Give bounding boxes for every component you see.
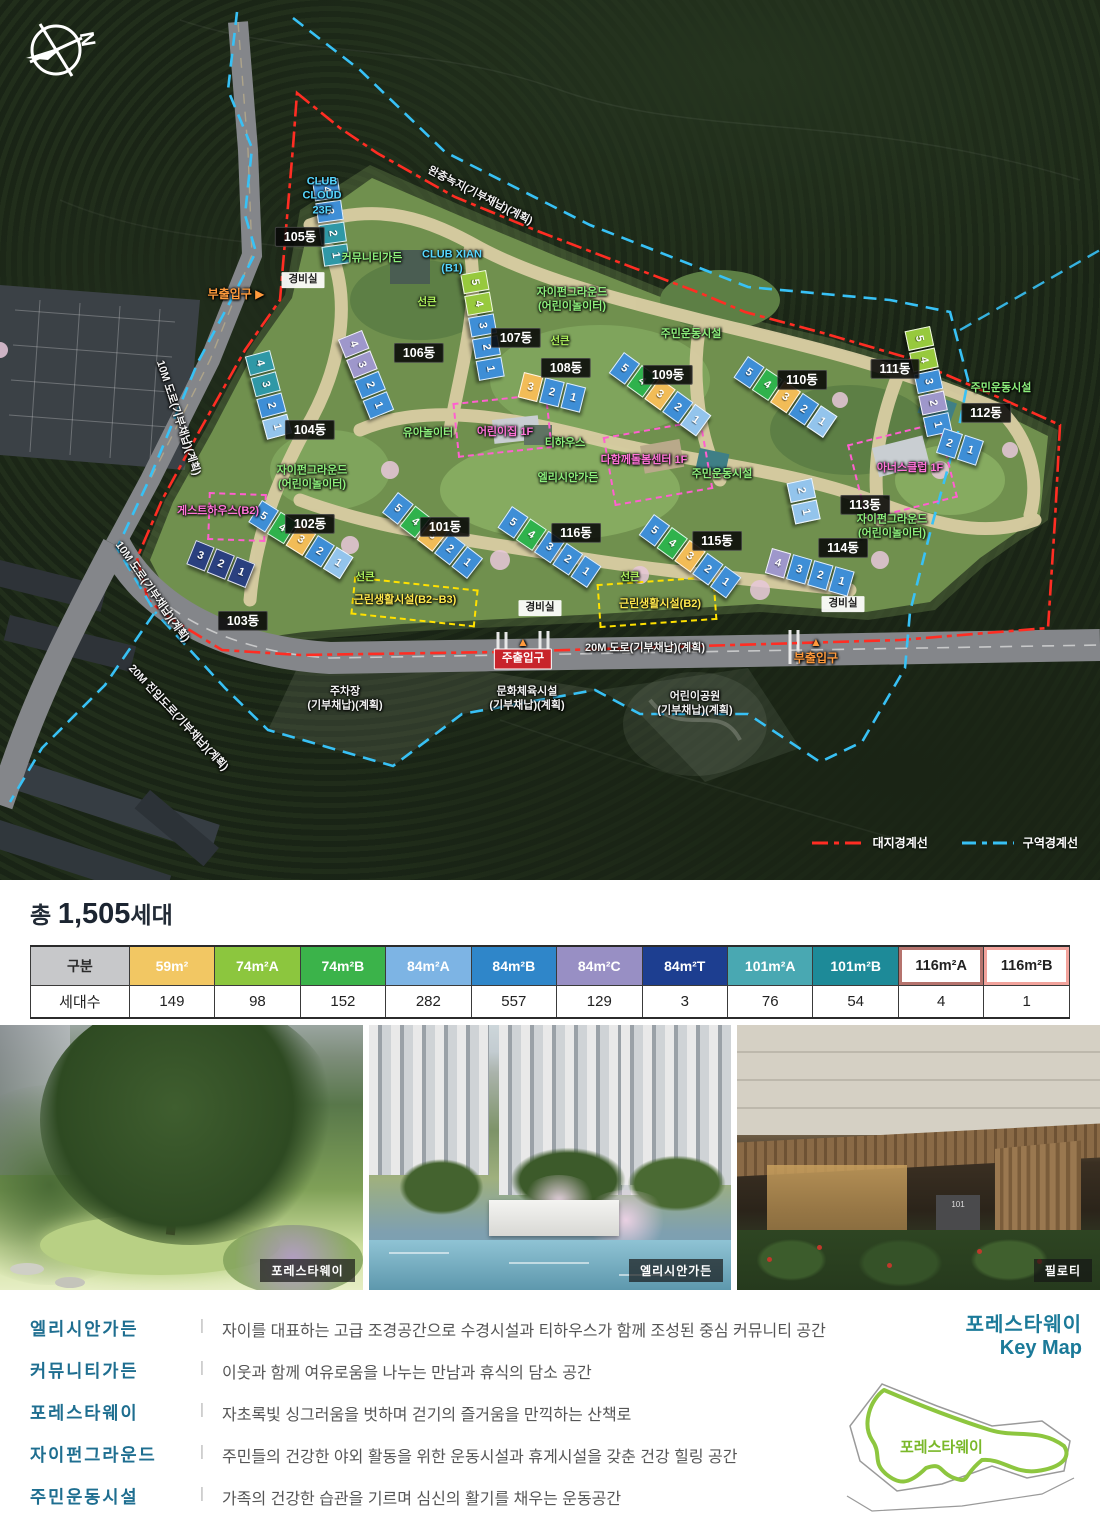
unit-count-74m²B: 152 [300, 986, 385, 1018]
map-label: 110동 [777, 370, 827, 390]
unit-count-101m²A: 76 [727, 986, 812, 1018]
photo-strip: 포레스타웨이 엘리시안가든 101 필로티 [0, 1025, 1100, 1290]
photo-caption: 필로티 [1034, 1259, 1092, 1282]
table-header-label: 116m²B [987, 950, 1066, 982]
unit-count-101m²B: 54 [813, 986, 898, 1018]
photo1-stone-art [10, 1263, 44, 1275]
map-label: 101동 [420, 517, 470, 537]
divider: | [182, 1442, 222, 1460]
map-label: 112동 [961, 403, 1011, 423]
table-header-label: 116m²A [902, 950, 980, 982]
building-unit-segment: 2 [787, 478, 817, 503]
keymap-route-label: 포레스타웨이 [900, 1438, 983, 1456]
map-label: 선큰 [620, 571, 639, 585]
compass-icon: N [18, 10, 108, 90]
photo-caption: 포레스타웨이 [260, 1259, 354, 1282]
map-label: 부출입구 [794, 651, 838, 667]
total-units-prefix: 총 [30, 902, 51, 928]
map-label: 어린이집 1F [477, 425, 533, 439]
map-label: 108동 [541, 358, 591, 378]
svg-text:N: N [75, 30, 99, 48]
map-label: 게스트하우스(B2) [177, 504, 259, 518]
table-header-116m²B: 116m²B [984, 946, 1070, 986]
site-plan-map: N 43214321432154321321543215432154321212… [0, 0, 1100, 880]
photo1-stone-art [55, 1277, 85, 1288]
map-label: CLUB XIAN (B1) [422, 248, 482, 277]
map-label: 114동 [818, 538, 868, 558]
total-units-title: 총 1,505세대 [30, 896, 1070, 931]
map-label: CLUB CLOUD 23F [302, 175, 341, 218]
map-label: 커뮤니티가든 [342, 251, 403, 265]
amenity-description: 가족의 건강한 습관을 기르며 심신의 활기를 채우는 운동공간 [222, 1484, 621, 1509]
building-unit-segment: 2 [918, 391, 948, 416]
unit-count-84m²C: 129 [557, 986, 642, 1018]
total-units-suffix: 세대 [130, 902, 172, 928]
legend-site-boundary-label: 대지경계선 [873, 834, 928, 851]
unit-count-116m²A: 4 [898, 986, 983, 1018]
keymap-block: 포레스타웨이 Key Map 포레스타웨이 [832, 1308, 1082, 1521]
table-header-84m²C: 84m²C [557, 946, 642, 986]
keymap-title: 포레스타웨이 [832, 1308, 1082, 1337]
map-label: 주차장 (기부채납)(계획) [307, 685, 382, 714]
photo-pilotis: 101 필로티 [737, 1025, 1100, 1290]
map-label: 자이펀그라운드 (어린이놀이터) [537, 286, 608, 315]
map-legend: 대지경계선 구역경계선 [812, 834, 1078, 851]
unit-type-table: 구분59m²74m²A74m²B84m²A84m²B84m²C84m²T101m… [30, 945, 1070, 1019]
map-label: 경비실 [282, 272, 325, 288]
map-label: 경비실 [519, 600, 562, 616]
map-label: 102동 [285, 514, 335, 534]
keymap-subtitle: Key Map [832, 1337, 1082, 1360]
divider: | [182, 1358, 222, 1376]
divider: | [182, 1484, 222, 1502]
map-label: ▲ [810, 635, 822, 651]
map-label: 근린생활시설(B2) [619, 597, 701, 611]
map-label: 티하우스 [545, 436, 585, 450]
map-label: 주민운동시설 [971, 381, 1032, 395]
legend-site-boundary: 대지경계선 [812, 834, 928, 851]
amenity-descriptions-section: 엘리시안가든|자이를 대표하는 고급 조경공간으로 수경시설과 티하우스가 함께… [0, 1290, 1100, 1529]
photo-foresta-way: 포레스타웨이 [0, 1025, 363, 1290]
map-label: 111동 [871, 359, 920, 379]
map-label: 근린생활시설(B2~B3) [354, 593, 457, 607]
photo3-stone-wall-art [737, 1025, 1100, 1135]
amenity-term: 엘리시안가든 [30, 1316, 182, 1341]
unit-count-84m²A: 282 [386, 986, 471, 1018]
map-label: 엘리시안가든 [538, 471, 599, 485]
map-label: 109동 [643, 365, 693, 385]
map-label: 자이펀그라운드 (어린이놀이터) [857, 513, 928, 542]
map-label: 104동 [285, 420, 335, 440]
map-label: 20M 도로(기부채납)(계획) [585, 641, 705, 655]
map-label: 선큰 [550, 335, 569, 349]
table-header-116m²A: 116m²A [898, 946, 983, 986]
unit-summary-section: 총 1,505세대 구분59m²74m²A74m²B84m²A84m²B84m²… [0, 880, 1100, 1022]
unit-count-84m²B: 557 [471, 986, 556, 1018]
photo2-pavilion-art [489, 1200, 619, 1236]
table-header-74m²B: 74m²B [300, 946, 385, 986]
map-label: 116동 [551, 523, 601, 543]
amenity-term: 커뮤니티가든 [30, 1358, 182, 1383]
divider: | [182, 1316, 222, 1334]
building-unit-segment: 5 [905, 326, 935, 351]
table-header-101m²B: 101m²B [813, 946, 898, 986]
map-label: 유아놀이터 [403, 426, 454, 440]
map-label: 107동 [491, 328, 541, 348]
amenity-description: 이웃과 함께 여유로움을 나누는 만남과 휴식의 담소 공간 [222, 1358, 592, 1383]
unit-count-59m²: 149 [129, 986, 214, 1018]
map-label: 어린이공원 (기부채납)(계획) [657, 690, 732, 719]
map-label: 선큰 [417, 296, 436, 310]
table-header-59m²: 59m² [129, 946, 214, 986]
map-label: 106동 [394, 343, 444, 363]
map-label: 주민운동시설 [661, 327, 722, 341]
table-header-84m²A: 84m²A [386, 946, 471, 986]
map-label: 부출입구 ▶ [208, 287, 265, 303]
legend-district-boundary-label: 구역경계선 [1023, 834, 1078, 851]
map-label: 문화체육시설 (기부채납)(계획) [489, 685, 564, 714]
total-units-count: 1,505 [58, 898, 131, 930]
amenity-term: 포레스타웨이 [30, 1400, 182, 1425]
map-label: 자이펀그라운드 (어린이놀이터) [277, 464, 348, 493]
district-boundary-line-sample [962, 840, 1014, 846]
keymap-outline: 포레스타웨이 [842, 1366, 1082, 1516]
photo-elysian-garden: 엘리시안가든 [369, 1025, 732, 1290]
map-label: 경비실 [822, 596, 865, 612]
amenity-description: 자초록빛 싱그러움을 벗하며 걷기의 즐거움을 만끽하는 산책로 [222, 1400, 631, 1425]
amenity-term: 주민운동시설 [30, 1484, 182, 1509]
table-header-category: 구분 [31, 946, 130, 986]
map-label: 103동 [218, 611, 268, 631]
unit-count-74m²A: 98 [215, 986, 300, 1018]
legend-district-boundary: 구역경계선 [962, 834, 1078, 851]
amenity-description: 자이를 대표하는 고급 조경공간으로 수경시설과 티하우스가 함께 조성된 중심… [222, 1316, 826, 1341]
table-header-101m²A: 101m²A [727, 946, 812, 986]
photo-caption: 엘리시안가든 [629, 1259, 723, 1282]
amenity-term: 자이펀그라운드 [30, 1442, 182, 1467]
amenity-description: 주민들의 건강한 야외 활동을 위한 운동시설과 휴게시설을 갖춘 건강 힐링 … [222, 1442, 738, 1467]
site-boundary-line-sample [812, 840, 864, 846]
map-label: 주출입구 [494, 649, 552, 670]
table-row-label: 세대수 [31, 986, 130, 1018]
table-header-84m²T: 84m²T [642, 946, 727, 986]
map-label: 선큰 [355, 571, 374, 585]
map-label: 105동 [275, 227, 325, 247]
map-label: 115동 [692, 531, 742, 551]
table-header-74m²A: 74m²A [215, 946, 300, 986]
building-unit-segment: 4 [464, 292, 493, 316]
unit-count-116m²B: 1 [984, 986, 1070, 1018]
unit-count-84m²T: 3 [642, 986, 727, 1018]
divider: | [182, 1400, 222, 1418]
map-label: 다함께돌봄센터 1F [601, 453, 688, 467]
map-label: 주민운동시설 [692, 467, 753, 481]
table-header-84m²B: 84m²B [471, 946, 556, 986]
map-label: 아너스클럽 1F [877, 461, 944, 475]
